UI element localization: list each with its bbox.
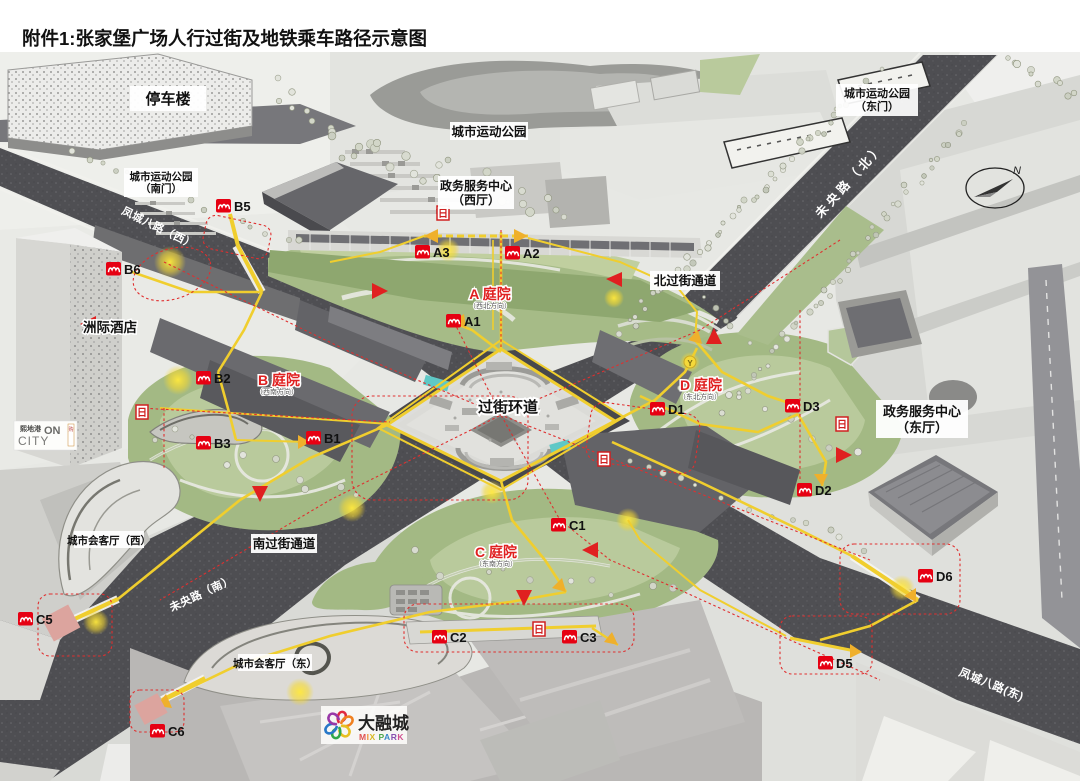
svg-text:（西南方向）: （西南方向） <box>256 387 298 396</box>
svg-text:B5: B5 <box>234 199 251 214</box>
svg-text:熙地港: 熙地港 <box>20 424 42 433</box>
svg-text:（西厅）: （西厅） <box>452 192 500 207</box>
svg-text:城市运动公园: 城市运动公园 <box>844 86 910 100</box>
svg-text:政务服务中心: 政务服务中心 <box>440 178 512 193</box>
svg-text:A3: A3 <box>433 245 450 260</box>
svg-text:D6: D6 <box>936 569 953 584</box>
svg-text:大融城: 大融城 <box>358 713 409 733</box>
svg-text:购: 购 <box>68 426 73 433</box>
svg-text:B2: B2 <box>214 371 231 386</box>
svg-text:B1: B1 <box>324 431 341 446</box>
svg-text:城市运动公园: 城市运动公园 <box>451 124 526 139</box>
svg-text:D1: D1 <box>668 402 685 417</box>
svg-text:（南门）: （南门） <box>140 182 182 195</box>
svg-text:（东南方向）: （东南方向） <box>475 559 517 568</box>
svg-text:B6: B6 <box>124 262 141 277</box>
svg-text:北过街通道: 北过街通道 <box>654 273 717 288</box>
svg-text:Y: Y <box>687 359 693 368</box>
svg-text:（东北方向）: （东北方向） <box>679 392 721 401</box>
svg-text:城市会客厅（东）: 城市会客厅（东） <box>233 657 317 670</box>
svg-text:C 庭院: C 庭院 <box>475 544 517 560</box>
svg-text:D5: D5 <box>836 656 853 671</box>
svg-text:A1: A1 <box>464 314 481 329</box>
svg-text:（东厅）: （东厅） <box>896 420 948 435</box>
svg-text:C2: C2 <box>450 630 467 645</box>
svg-text:停车楼: 停车楼 <box>145 90 190 108</box>
svg-text:D 庭院: D 庭院 <box>680 377 722 393</box>
svg-text:N: N <box>1013 165 1021 177</box>
svg-text:C5: C5 <box>36 612 53 627</box>
svg-text:城市运动公园: 城市运动公园 <box>130 170 193 183</box>
svg-text:城市会客厅（西）: 城市会客厅（西） <box>67 534 151 547</box>
svg-text:D3: D3 <box>803 399 820 414</box>
svg-text:MIX PARK: MIX PARK <box>359 732 404 742</box>
svg-text:A2: A2 <box>523 246 540 261</box>
svg-text:政务服务中心: 政务服务中心 <box>883 404 961 419</box>
svg-text:D2: D2 <box>815 483 832 498</box>
svg-text:C1: C1 <box>569 518 586 533</box>
svg-text:CITY: CITY <box>18 434 49 448</box>
svg-text:（西北方向）: （西北方向） <box>469 301 511 310</box>
svg-text:B3: B3 <box>214 436 231 451</box>
svg-text:过街环道: 过街环道 <box>478 398 538 416</box>
svg-text:（东门）: （东门） <box>855 99 899 113</box>
svg-text:C3: C3 <box>580 630 597 645</box>
svg-text:洲际酒店: 洲际酒店 <box>83 319 137 335</box>
svg-text:B 庭院: B 庭院 <box>258 372 300 388</box>
svg-text:A 庭院: A 庭院 <box>469 286 510 302</box>
svg-text:C6: C6 <box>168 724 185 739</box>
svg-text:南过街通道: 南过街通道 <box>253 536 316 551</box>
